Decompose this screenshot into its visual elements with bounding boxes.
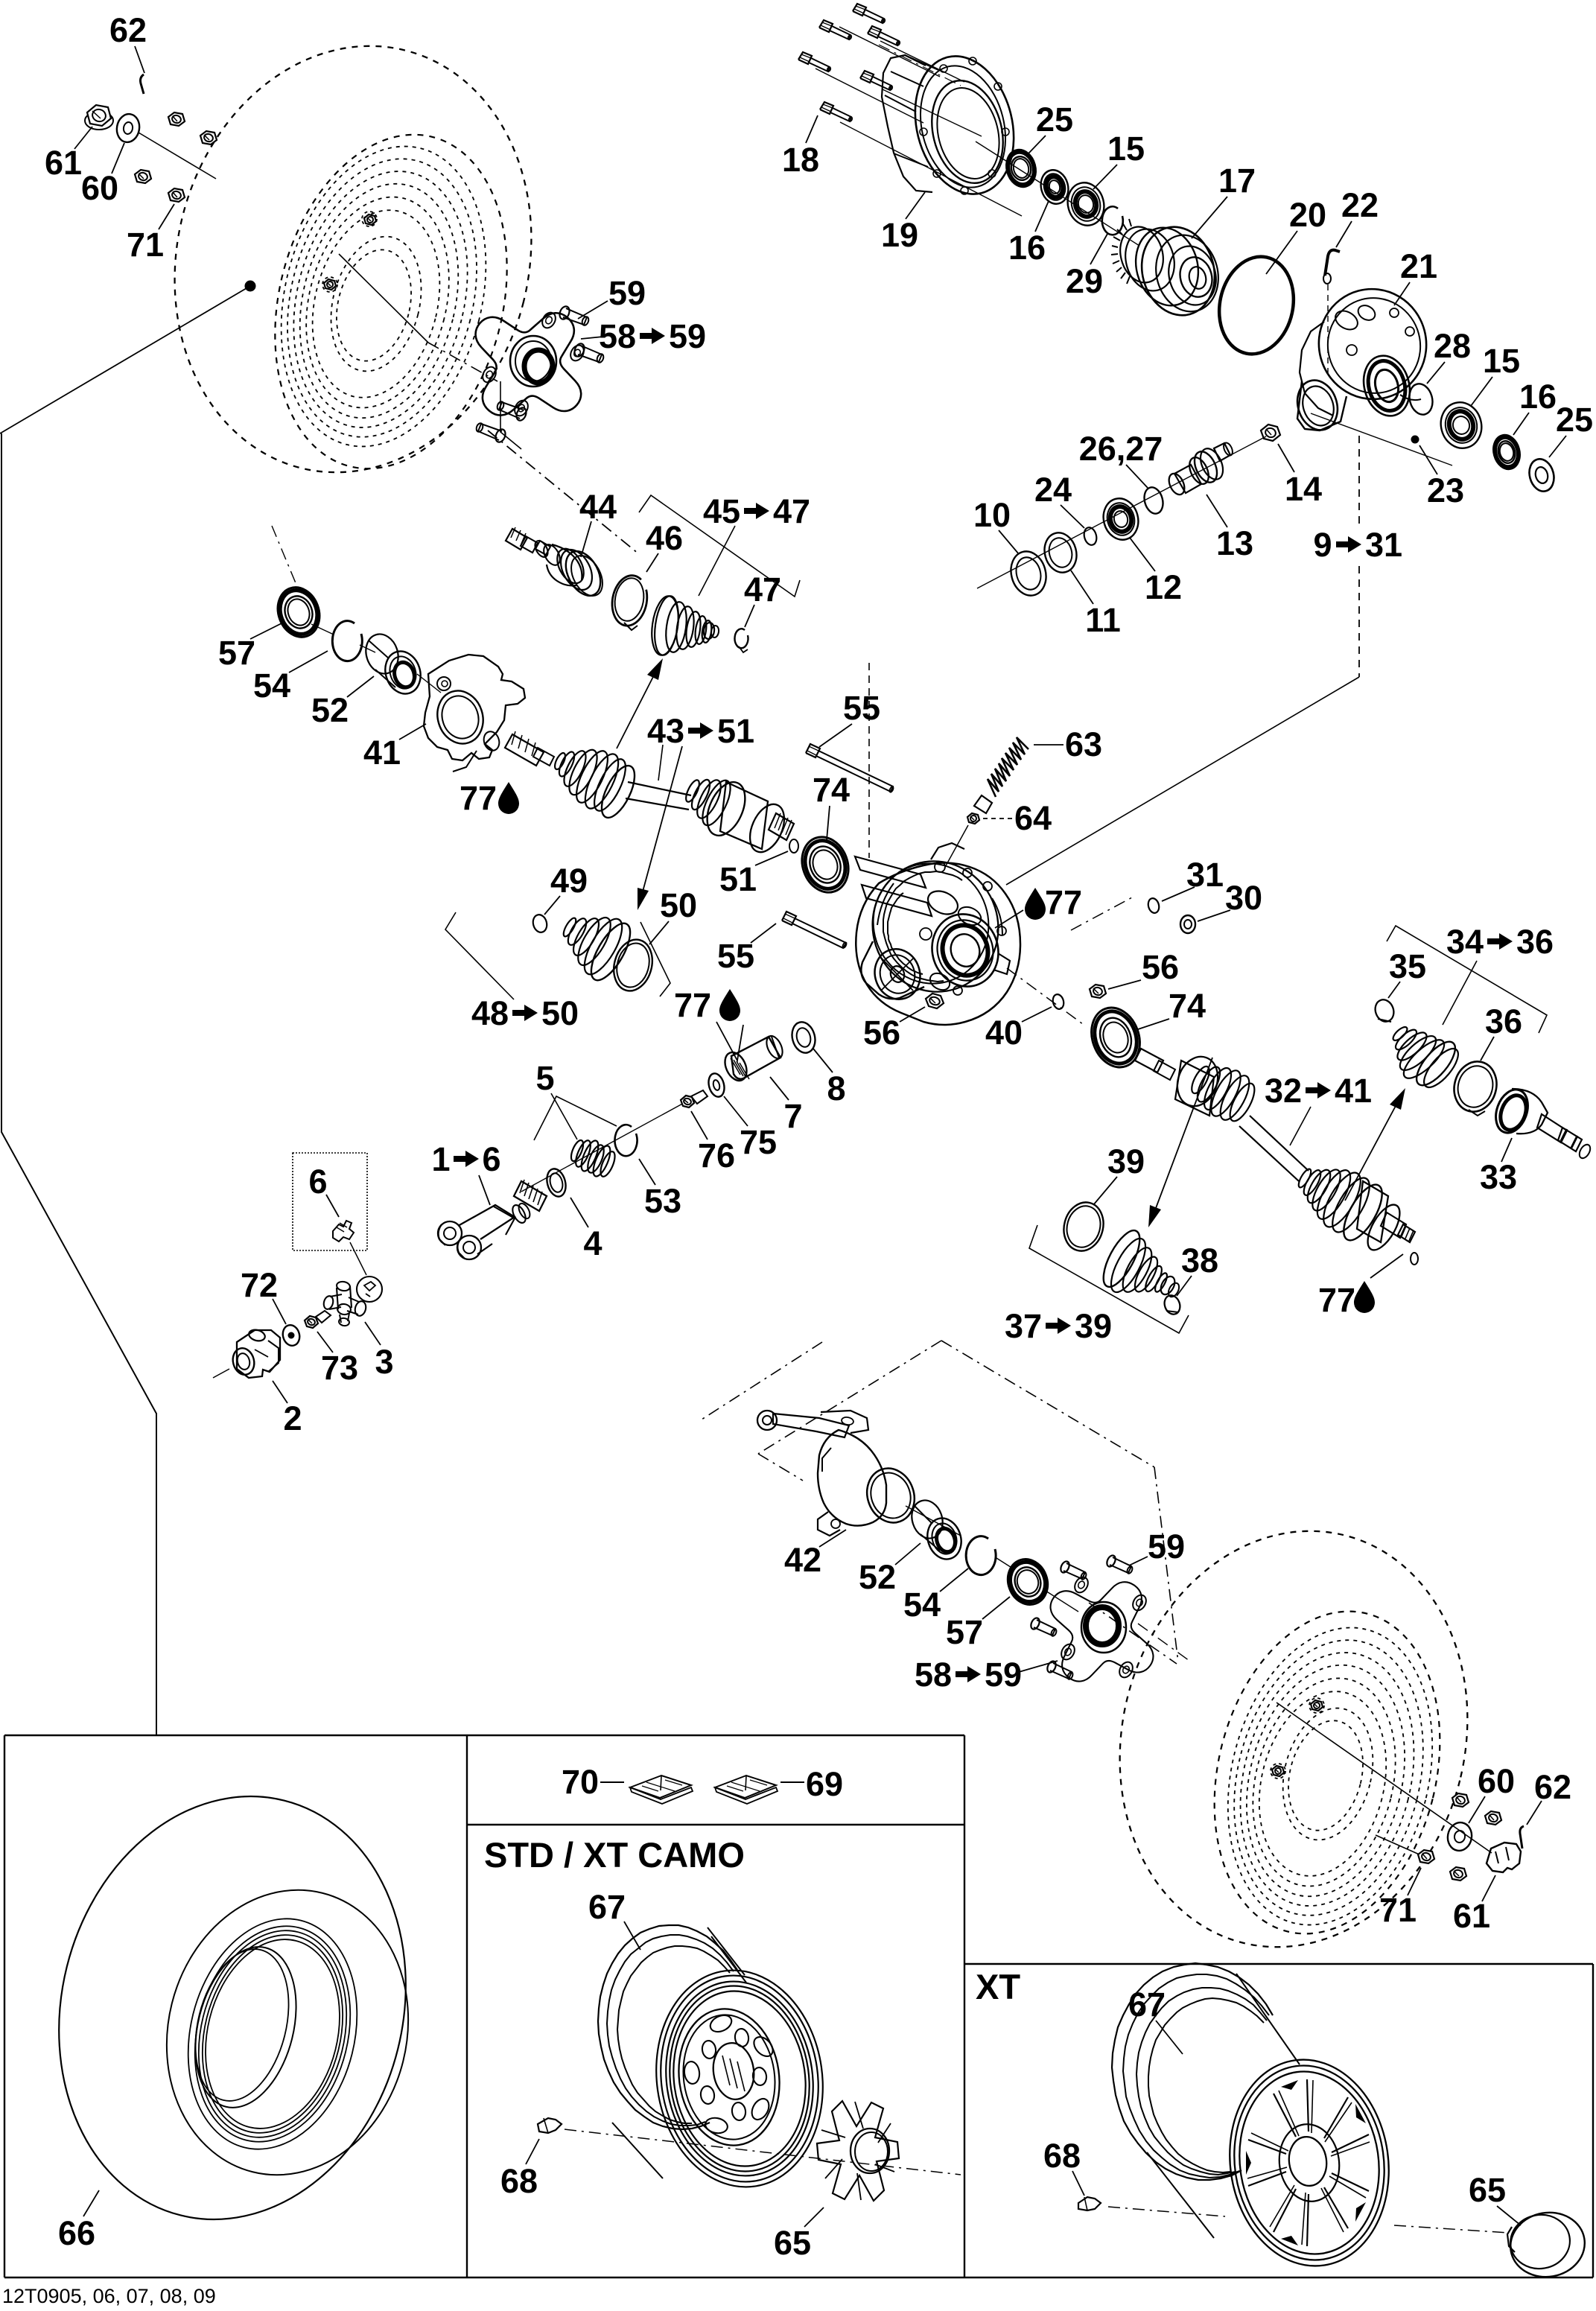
svg-text:2: 2 bbox=[283, 1399, 302, 1437]
svg-text:45: 45 bbox=[703, 492, 740, 530]
svg-text:6: 6 bbox=[308, 1163, 327, 1201]
svg-text:54: 54 bbox=[253, 667, 290, 705]
svg-text:68: 68 bbox=[500, 2162, 538, 2200]
svg-text:21: 21 bbox=[1400, 247, 1437, 285]
svg-text:61: 61 bbox=[45, 144, 82, 182]
svg-text:59: 59 bbox=[1148, 1528, 1185, 1565]
svg-text:47: 47 bbox=[744, 570, 781, 608]
svg-text:15: 15 bbox=[1107, 130, 1145, 168]
svg-text:33: 33 bbox=[1480, 1158, 1517, 1196]
svg-text:42: 42 bbox=[784, 1541, 821, 1579]
svg-text:23: 23 bbox=[1427, 471, 1464, 509]
svg-text:16: 16 bbox=[1008, 229, 1046, 267]
svg-text:58: 58 bbox=[915, 1656, 952, 1694]
svg-text:59: 59 bbox=[985, 1656, 1022, 1694]
svg-text:STD / XT CAMO: STD / XT CAMO bbox=[484, 1835, 745, 1875]
svg-text:60: 60 bbox=[81, 169, 118, 207]
svg-text:60: 60 bbox=[1478, 1762, 1515, 1800]
svg-text:31: 31 bbox=[1365, 526, 1402, 564]
svg-text:57: 57 bbox=[946, 1613, 983, 1651]
svg-text:59: 59 bbox=[608, 274, 646, 312]
svg-text:12T0905, 06, 07, 08, 09: 12T0905, 06, 07, 08, 09 bbox=[2, 2285, 216, 2307]
svg-text:9: 9 bbox=[1313, 526, 1332, 564]
svg-text:70: 70 bbox=[562, 1763, 599, 1801]
svg-text:48: 48 bbox=[471, 994, 509, 1032]
svg-text:43: 43 bbox=[647, 712, 684, 750]
svg-text:63: 63 bbox=[1065, 725, 1102, 763]
svg-text:6: 6 bbox=[482, 1140, 500, 1178]
svg-text:69: 69 bbox=[806, 1765, 843, 1803]
svg-text:56: 56 bbox=[863, 1014, 900, 1052]
svg-text:49: 49 bbox=[550, 862, 588, 900]
svg-text:62: 62 bbox=[109, 11, 147, 49]
svg-text:15: 15 bbox=[1483, 342, 1520, 380]
svg-text:67: 67 bbox=[588, 1888, 626, 1926]
svg-text:34: 34 bbox=[1446, 923, 1484, 961]
svg-text:14: 14 bbox=[1285, 470, 1322, 508]
svg-text:46: 46 bbox=[646, 519, 683, 557]
svg-text:29: 29 bbox=[1066, 262, 1103, 300]
svg-text:36: 36 bbox=[1485, 1002, 1522, 1040]
svg-text:20: 20 bbox=[1289, 196, 1326, 234]
svg-text:50: 50 bbox=[660, 886, 697, 924]
svg-text:51: 51 bbox=[719, 860, 757, 898]
svg-text:52: 52 bbox=[859, 1558, 896, 1596]
svg-text:41: 41 bbox=[363, 734, 401, 772]
svg-text:1: 1 bbox=[431, 1140, 450, 1178]
svg-text:19: 19 bbox=[881, 216, 918, 254]
svg-text:75: 75 bbox=[740, 1123, 777, 1161]
svg-text:30: 30 bbox=[1225, 879, 1262, 917]
svg-text:41: 41 bbox=[1335, 1072, 1372, 1110]
svg-text:71: 71 bbox=[1379, 1891, 1417, 1929]
svg-text:65: 65 bbox=[774, 2224, 811, 2262]
svg-text:18: 18 bbox=[782, 141, 819, 179]
svg-text:76: 76 bbox=[698, 1137, 735, 1174]
svg-text:7: 7 bbox=[783, 1097, 802, 1135]
svg-text:67: 67 bbox=[1128, 1986, 1166, 2024]
svg-text:39: 39 bbox=[1075, 1307, 1112, 1345]
svg-text:77: 77 bbox=[1045, 883, 1082, 921]
svg-text:5: 5 bbox=[535, 1059, 554, 1097]
svg-text:74: 74 bbox=[813, 771, 850, 809]
svg-text:32: 32 bbox=[1265, 1072, 1302, 1110]
svg-text:54: 54 bbox=[903, 1586, 941, 1624]
svg-text:57: 57 bbox=[218, 634, 255, 672]
svg-text:65: 65 bbox=[1469, 2171, 1506, 2209]
svg-text:51: 51 bbox=[717, 712, 754, 750]
svg-text:38: 38 bbox=[1181, 1242, 1218, 1280]
svg-text:44: 44 bbox=[579, 488, 617, 526]
svg-text:50: 50 bbox=[541, 994, 579, 1032]
svg-text:72: 72 bbox=[241, 1266, 278, 1304]
svg-text:71: 71 bbox=[127, 226, 164, 264]
svg-text:26,27: 26,27 bbox=[1079, 430, 1163, 468]
svg-text:25: 25 bbox=[1036, 101, 1073, 139]
svg-text:28: 28 bbox=[1434, 327, 1471, 365]
svg-text:68: 68 bbox=[1043, 2137, 1081, 2175]
svg-text:64: 64 bbox=[1014, 799, 1052, 837]
svg-text:55: 55 bbox=[843, 689, 880, 727]
svg-text:52: 52 bbox=[311, 691, 349, 729]
svg-text:16: 16 bbox=[1519, 378, 1557, 416]
svg-text:22: 22 bbox=[1341, 186, 1379, 224]
svg-text:73: 73 bbox=[321, 1349, 358, 1387]
svg-text:17: 17 bbox=[1218, 162, 1256, 200]
svg-text:53: 53 bbox=[644, 1182, 681, 1220]
svg-text:77: 77 bbox=[674, 986, 711, 1024]
svg-text:66: 66 bbox=[58, 2214, 95, 2252]
svg-text:40: 40 bbox=[985, 1014, 1023, 1052]
svg-text:47: 47 bbox=[773, 492, 810, 530]
svg-text:77: 77 bbox=[460, 779, 497, 817]
svg-text:10: 10 bbox=[973, 496, 1011, 534]
svg-text:8: 8 bbox=[827, 1069, 845, 1107]
svg-text:12: 12 bbox=[1145, 568, 1182, 606]
svg-text:39: 39 bbox=[1107, 1142, 1145, 1180]
svg-text:3: 3 bbox=[375, 1343, 393, 1381]
svg-text:56: 56 bbox=[1142, 948, 1179, 986]
svg-text:37: 37 bbox=[1005, 1307, 1042, 1345]
svg-text:62: 62 bbox=[1534, 1768, 1571, 1806]
svg-text:36: 36 bbox=[1516, 923, 1554, 961]
svg-text:4: 4 bbox=[583, 1224, 602, 1262]
svg-text:24: 24 bbox=[1034, 471, 1072, 509]
svg-text:55: 55 bbox=[717, 937, 754, 975]
svg-text:11: 11 bbox=[1085, 601, 1121, 639]
svg-text:XT: XT bbox=[976, 1967, 1020, 2006]
svg-text:74: 74 bbox=[1169, 987, 1206, 1025]
svg-text:77: 77 bbox=[1318, 1281, 1355, 1319]
svg-text:25: 25 bbox=[1556, 401, 1593, 439]
svg-text:35: 35 bbox=[1389, 947, 1426, 985]
svg-text:13: 13 bbox=[1216, 524, 1253, 562]
svg-text:58: 58 bbox=[599, 317, 636, 355]
svg-text:59: 59 bbox=[669, 317, 706, 355]
svg-text:61: 61 bbox=[1453, 1897, 1490, 1935]
